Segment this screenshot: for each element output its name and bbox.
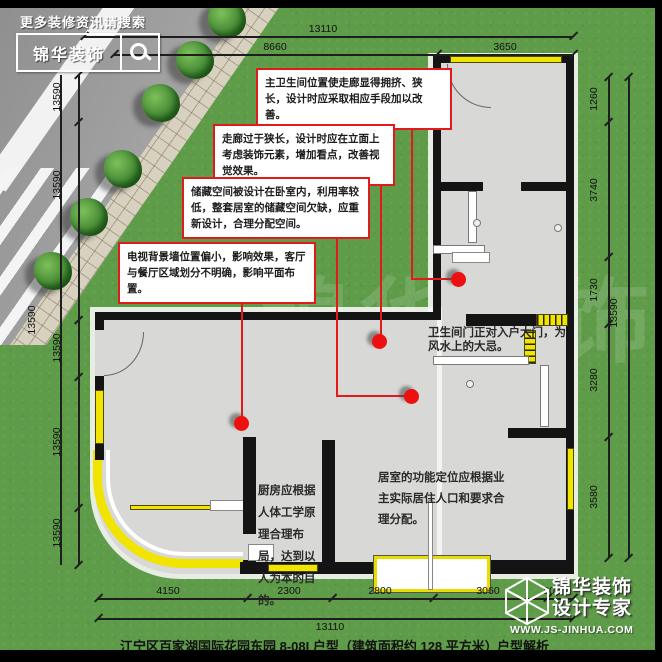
dim-label: 1260 — [588, 69, 600, 129]
callout-connector — [336, 395, 411, 397]
fixture-dot — [554, 224, 562, 232]
partition-wall — [433, 356, 529, 365]
plan-note-fengshui: 卫生间门正对入户大门，为风水上的大忌。 — [428, 326, 568, 354]
issue-marker-dot — [234, 416, 249, 431]
search-button[interactable] — [120, 35, 158, 70]
dim-label: 13110 — [293, 23, 353, 35]
dim-line — [98, 618, 573, 620]
dim-label: 13110 — [300, 621, 360, 633]
dim-label: 3580 — [588, 467, 600, 527]
wall-segment — [508, 428, 573, 438]
top-frame-bar — [0, 0, 662, 8]
dim-line — [98, 598, 573, 600]
callout-connector — [241, 297, 243, 423]
search-icon-handle — [143, 52, 151, 60]
callout-master-bath: 主卫生间位置使走廊显得拥挤、狭长，设计时应采取相应手段加以改善。 — [256, 68, 452, 130]
dim-label: 2300 — [259, 585, 319, 597]
partition-wall — [468, 191, 477, 243]
brand-logo-text: 锦华装饰 — [18, 35, 120, 70]
tree — [104, 150, 142, 188]
brand-name-block: 锦华装饰 设计专家 — [552, 577, 632, 619]
brand-tagline: 设计专家 — [552, 598, 632, 619]
search-box[interactable]: 锦华装饰 — [16, 33, 160, 72]
dim-label: 13590 — [608, 283, 620, 343]
plan-note-rooms: 居室的功能定位应根据业主实际居住人口和要求合理分配。 — [378, 468, 506, 531]
issue-marker-dot — [404, 389, 419, 404]
brand-website[interactable]: WWW.JS-JINHUA.COM — [510, 624, 633, 636]
cube-logo-icon — [504, 576, 550, 626]
wall-segment — [95, 312, 441, 320]
dim-line — [114, 54, 573, 56]
callout-connector — [380, 166, 382, 341]
window-left-wall — [95, 390, 104, 444]
balcony-slider-window — [130, 505, 214, 510]
door-opening — [483, 182, 521, 191]
tree — [176, 41, 214, 79]
bottom-frame-bar — [0, 650, 662, 662]
right-frame-bar — [655, 0, 662, 662]
tree — [142, 84, 180, 122]
dim-label: 1730 — [588, 260, 600, 320]
door-opening — [95, 330, 104, 376]
dim-label: 13590 — [51, 67, 63, 127]
dim-line — [628, 77, 630, 558]
window-sill — [210, 500, 246, 511]
callout-connector — [336, 237, 338, 397]
dim-label: 13590 — [51, 503, 63, 563]
callout-storage: 储藏空间被设计在卧室内，利用率较低，整套居室的储藏空间欠缺，应重新设计，合理分配… — [182, 177, 370, 239]
fixture-cabinet — [452, 252, 490, 263]
window-bedroom-top — [450, 56, 562, 63]
tree — [34, 252, 72, 290]
dim-label: 13590 — [51, 412, 63, 472]
tree — [70, 198, 108, 236]
entry-door-hatch — [536, 314, 568, 326]
fixture-dot — [466, 380, 474, 388]
fixture-dot — [473, 219, 481, 227]
dim-label: 4150 — [138, 585, 198, 597]
wall-entry — [466, 314, 538, 326]
dim-label: 3650 — [475, 41, 535, 53]
dim-label: 2800 — [350, 585, 410, 597]
dim-label: 8660 — [245, 41, 305, 53]
window-right-wall — [567, 448, 574, 510]
dim-label: 3740 — [588, 160, 600, 220]
callout-tv-wall: 电视背景墙位置偏小，影响效果，客厅与餐厅区域划分不明确，影响平面布置。 — [118, 242, 316, 304]
dim-label: 13590 — [51, 318, 63, 378]
issue-marker-dot — [372, 334, 387, 349]
dim-label: 13590 — [51, 155, 63, 215]
dim-label: 13590 — [26, 290, 38, 350]
partition-wall — [540, 365, 549, 427]
dim-label: 3280 — [588, 350, 600, 410]
issue-marker-dot — [451, 272, 466, 287]
search-hint-text: 更多装修资讯请搜索 — [20, 12, 146, 31]
floorplan-advert-page: { "header": { "search_hint": "更多装修资讯请搜索"… — [0, 0, 662, 662]
brand-name: 锦华装饰 — [552, 577, 632, 598]
callout-connector — [411, 122, 413, 280]
